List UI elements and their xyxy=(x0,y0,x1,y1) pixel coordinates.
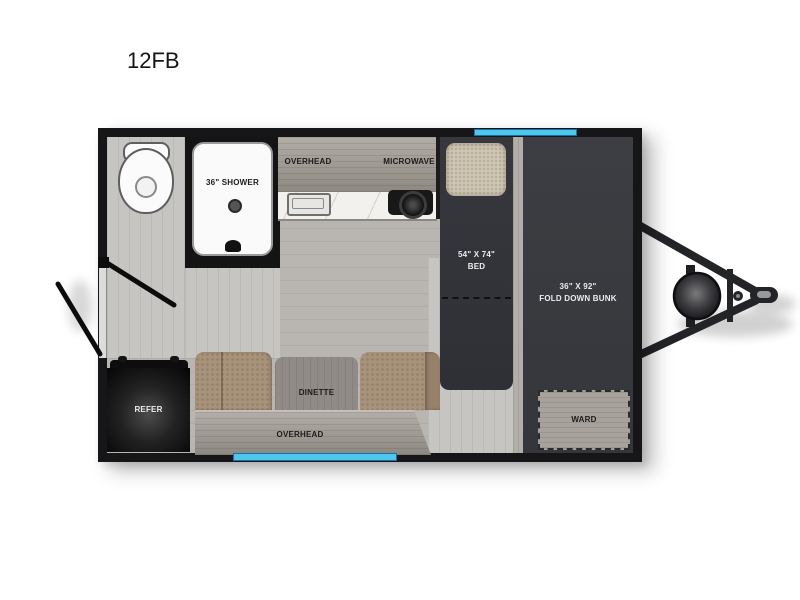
sink-icon xyxy=(287,193,331,216)
floorplan-body: 36" SHOWER OVERHEAD MICROWAVE 54" X 74" … xyxy=(98,128,642,462)
bunk-name-label: FOLD DOWN BUNK xyxy=(523,293,633,305)
propane-tank-icon xyxy=(674,273,720,319)
bench-seam xyxy=(221,352,223,410)
door-hinge-block xyxy=(98,257,109,268)
burner xyxy=(399,191,427,219)
pillow xyxy=(446,143,506,196)
door-shadow xyxy=(68,280,92,332)
bunk-label: 36" X 92" FOLD DOWN BUNK xyxy=(523,281,633,305)
microwave-label: MICROWAVE xyxy=(378,157,440,167)
window-top xyxy=(474,129,577,136)
bed-fold-line xyxy=(442,297,511,299)
shower-stall: 36" SHOWER xyxy=(185,137,280,268)
bunk-size-label: 36" X 92" xyxy=(523,281,633,293)
bench-armrest xyxy=(425,352,440,410)
dinette-label: DINETTE xyxy=(275,388,358,398)
bed-name-label: BED xyxy=(440,261,513,273)
toilet-flush-button xyxy=(135,176,157,198)
shower-pan: 36" SHOWER xyxy=(192,142,273,256)
shower-label: 36" SHOWER xyxy=(194,178,271,188)
wardrobe: WARD xyxy=(538,390,630,450)
overhead-top-label: OVERHEAD xyxy=(280,157,336,167)
shower-faucet-icon xyxy=(225,240,241,252)
refer-knob-left xyxy=(118,356,127,362)
bed-label: 54" X 74" BED xyxy=(440,249,513,273)
page-title: 12FB xyxy=(127,48,180,74)
dinette-table: DINETTE xyxy=(275,357,358,410)
refrigerator-icon: REFER xyxy=(107,368,190,452)
shower-drain-icon xyxy=(228,199,242,213)
bed-platform: 54" X 74" BED xyxy=(440,137,513,390)
cooktop-icon xyxy=(388,190,433,215)
bathroom-floor-under-shower xyxy=(185,268,280,358)
bed-size-label: 54" X 74" xyxy=(440,249,513,261)
floorplan-page: { "title": "12FB", "labels": { "shower":… xyxy=(0,0,800,600)
refer-label: REFER xyxy=(134,405,162,415)
kitchen-overhead-cabinet: OVERHEAD MICROWAVE xyxy=(278,137,437,194)
overhead-bottom-label: OVERHEAD xyxy=(255,430,345,440)
window-bottom xyxy=(233,453,397,461)
ward-label: WARD xyxy=(571,415,596,425)
dinette-bench-left xyxy=(195,352,272,410)
toilet-icon xyxy=(116,140,174,210)
hitch-coupler-slot xyxy=(757,291,771,298)
entry-door-panel xyxy=(99,268,107,358)
dinette-bench-right xyxy=(360,352,440,410)
dinette-overhead-cabinet: OVERHEAD xyxy=(195,410,431,455)
safety-chain-ring-hole xyxy=(736,294,740,298)
sink-basin xyxy=(292,198,324,209)
bed-bunk-divider xyxy=(513,137,523,453)
refer-knob-right xyxy=(170,356,179,362)
fold-down-bunk: 36" X 92" FOLD DOWN BUNK WARD xyxy=(523,137,633,453)
